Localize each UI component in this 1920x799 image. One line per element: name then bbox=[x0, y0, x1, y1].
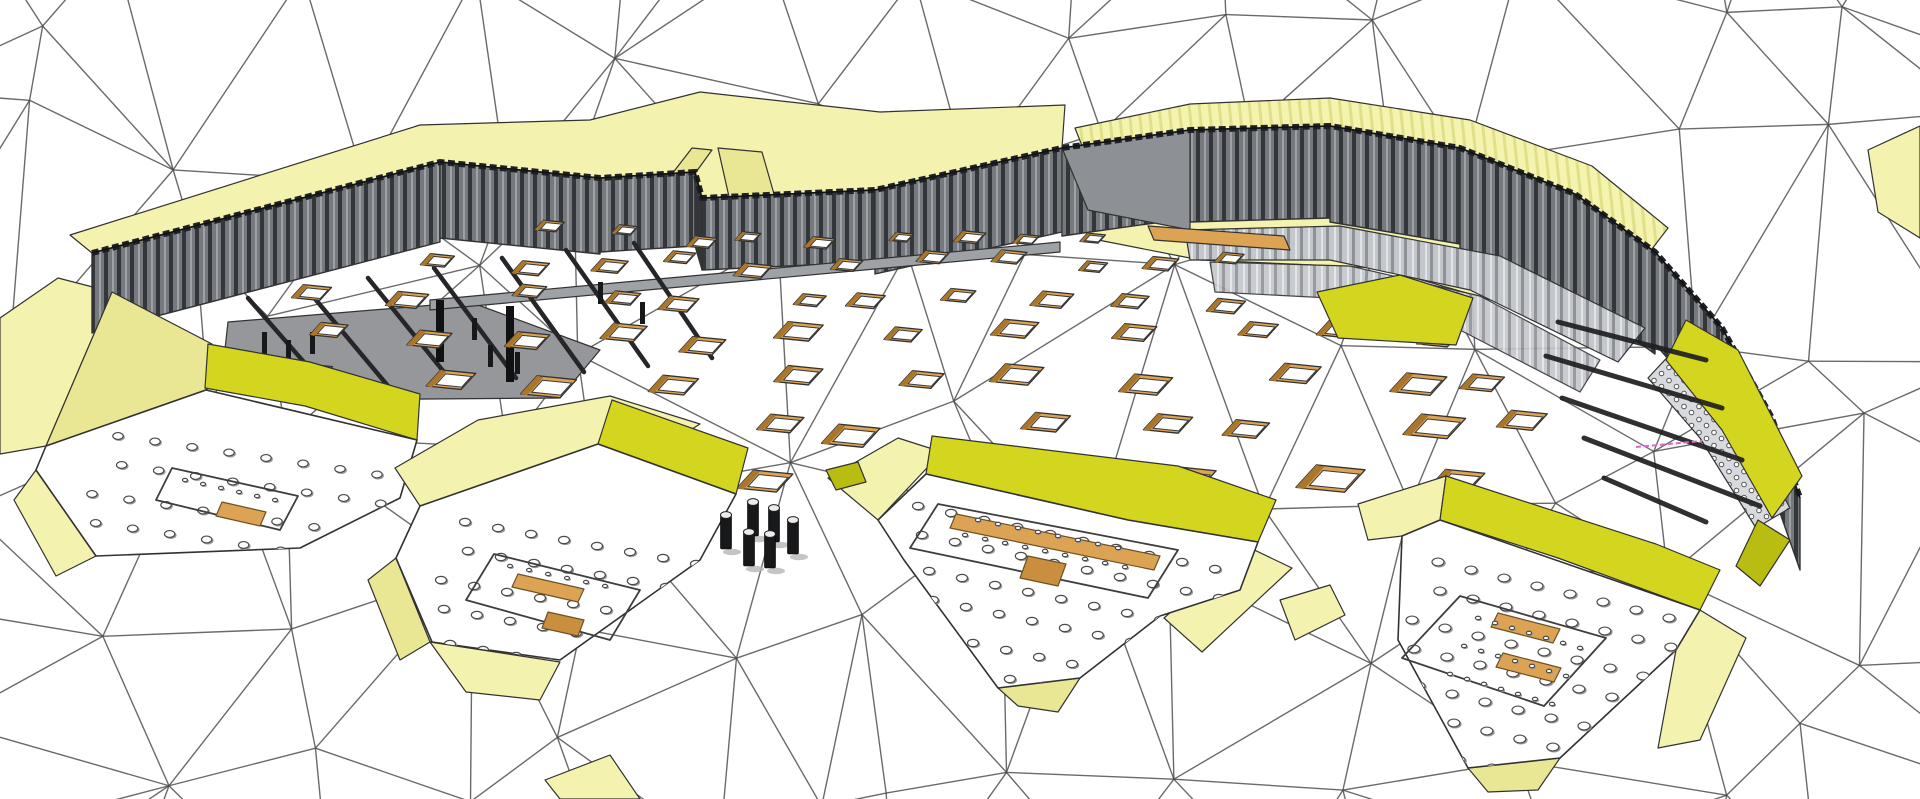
posthole-dot bbox=[201, 536, 211, 543]
posthole-dot bbox=[164, 531, 174, 538]
mesh-edge bbox=[914, 0, 1068, 38]
mesh-edge bbox=[113, 0, 173, 170]
posthole-dot bbox=[1447, 672, 1452, 675]
posthole-shadow bbox=[1355, 733, 1368, 742]
posthole-dot bbox=[610, 670, 621, 677]
posthole-dot bbox=[1042, 549, 1047, 552]
excavation-pit bbox=[511, 261, 549, 276]
posthole-shadow bbox=[1192, 653, 1204, 661]
posthole-dot bbox=[594, 571, 605, 578]
mesh-edge bbox=[1696, 124, 1828, 346]
post-ground-shadow bbox=[723, 549, 741, 555]
excavation-pit bbox=[648, 375, 698, 395]
mesh-edge bbox=[43, 0, 114, 26]
excavation-pit bbox=[1296, 465, 1365, 492]
posthole-dot bbox=[1089, 602, 1100, 609]
excavation-pit bbox=[989, 364, 1044, 386]
post-top bbox=[769, 505, 780, 512]
mesh-edge bbox=[736, 615, 862, 659]
posthole-dot bbox=[1563, 674, 1568, 677]
excavation-pit bbox=[1111, 294, 1149, 309]
posthole-dot bbox=[693, 589, 704, 596]
posthole-dot bbox=[1529, 664, 1534, 667]
mesh-edge bbox=[169, 629, 292, 786]
excavation-pit bbox=[1080, 233, 1105, 243]
mesh-edge bbox=[1766, 0, 1842, 7]
mesh-edge bbox=[1069, 15, 1226, 39]
mesh-edge bbox=[1343, 790, 1551, 799]
excavation-pit bbox=[600, 323, 647, 342]
excavation-pit bbox=[1222, 420, 1269, 439]
posthole-dot bbox=[1380, 674, 1392, 682]
props-layer bbox=[721, 499, 809, 575]
mesh-edge bbox=[1842, 0, 1920, 7]
excavation-pit bbox=[591, 259, 628, 274]
mesh-edge bbox=[822, 793, 886, 799]
posthole-dot bbox=[1479, 698, 1491, 706]
posthole-dot bbox=[309, 524, 319, 531]
posthole-dot bbox=[1001, 646, 1012, 653]
mesh-edge bbox=[1007, 772, 1099, 799]
mesh-edge bbox=[1842, 7, 1920, 62]
posthole-dot bbox=[990, 581, 1001, 588]
east-green-foot bbox=[1736, 520, 1790, 586]
posthole-shadow bbox=[643, 677, 655, 685]
posthole-dot bbox=[1472, 632, 1484, 640]
posthole-dot bbox=[1611, 730, 1623, 738]
posthole-dot bbox=[584, 580, 589, 583]
mesh-edge bbox=[1809, 124, 1829, 361]
posthole-shadow bbox=[634, 613, 646, 621]
mesh-edge bbox=[471, 737, 558, 799]
post-body bbox=[744, 532, 755, 566]
posthole-dot bbox=[1604, 664, 1616, 672]
posthole-platforms-layer bbox=[14, 292, 1746, 799]
posthole-shadow bbox=[1646, 768, 1659, 777]
posthole-dot bbox=[1406, 616, 1418, 624]
posthole-dot bbox=[1177, 558, 1188, 565]
mesh-edge bbox=[0, 609, 103, 636]
posthole-dot bbox=[526, 530, 537, 537]
posthole-dot bbox=[1526, 631, 1531, 634]
posthole-dot bbox=[535, 594, 546, 601]
posthole-dot bbox=[1547, 743, 1559, 751]
posthole-dot bbox=[1515, 692, 1520, 695]
posthole-dot bbox=[1026, 617, 1037, 624]
posthole-dot bbox=[1498, 687, 1503, 690]
posthole-shadow bbox=[869, 619, 881, 627]
excavation-pit bbox=[991, 319, 1039, 338]
posthole-dot bbox=[1632, 635, 1644, 643]
post-body bbox=[765, 534, 776, 568]
mesh-edge bbox=[1859, 413, 1864, 665]
posthole-dot bbox=[1498, 574, 1510, 582]
mesh-edge bbox=[1341, 346, 1475, 350]
posthole-dot bbox=[1122, 609, 1133, 616]
mesh-edge bbox=[1727, 723, 1800, 795]
posthole-shadow bbox=[891, 561, 903, 569]
excavation-pit bbox=[1079, 261, 1108, 272]
posthole-dot bbox=[625, 548, 636, 555]
mesh-edge bbox=[1679, 124, 1828, 129]
posthole-dot bbox=[1552, 780, 1564, 788]
posthole-dot bbox=[1571, 656, 1583, 664]
mesh-edge bbox=[818, 0, 914, 104]
posthole-dot bbox=[1387, 740, 1399, 748]
posthole-dot bbox=[1432, 558, 1444, 566]
posthole-dot bbox=[1606, 693, 1618, 701]
posthole-dot bbox=[869, 618, 880, 625]
posthole-dot bbox=[272, 518, 282, 525]
posthole-dot bbox=[508, 564, 513, 567]
posthole-dot bbox=[1100, 667, 1111, 674]
posthole-dot bbox=[1538, 648, 1550, 656]
mesh-edge bbox=[769, 0, 819, 104]
posthole-dot bbox=[1446, 690, 1458, 698]
posthole-shadow bbox=[1381, 675, 1394, 684]
posthole-dot bbox=[993, 610, 1004, 617]
posthole-shadow bbox=[1613, 760, 1626, 769]
posthole-dot bbox=[982, 545, 993, 552]
posthole-dot bbox=[1505, 640, 1517, 648]
posthole-dot bbox=[127, 525, 137, 532]
posthole-dot bbox=[504, 617, 515, 624]
mesh-edge bbox=[0, 786, 169, 799]
timber-post bbox=[515, 352, 520, 374]
posthole-shadow bbox=[902, 626, 914, 634]
posthole-dot bbox=[1566, 619, 1578, 627]
posthole-dot bbox=[150, 438, 160, 445]
posthole-dot bbox=[1023, 588, 1034, 595]
posthole-dot bbox=[968, 639, 979, 646]
mesh-edge bbox=[1864, 413, 1920, 464]
posthole-dot bbox=[891, 560, 902, 567]
excavation-pit bbox=[1206, 298, 1245, 313]
excavation-pit bbox=[774, 366, 823, 385]
posthole-shadow bbox=[346, 530, 357, 537]
posthole-dot bbox=[1055, 534, 1060, 537]
mesh-edge bbox=[103, 629, 292, 636]
posthole-dot bbox=[1136, 703, 1147, 710]
black-post-cylinder bbox=[744, 529, 765, 573]
mesh-edge bbox=[1809, 361, 1865, 413]
posthole-dot bbox=[627, 577, 638, 584]
posthole-dot bbox=[116, 462, 126, 469]
posthole-dot bbox=[1464, 677, 1469, 680]
black-post-cylinder bbox=[765, 531, 786, 575]
posthole-dot bbox=[1495, 654, 1500, 657]
posthole-dot bbox=[1599, 627, 1611, 635]
posthole-dot bbox=[493, 524, 504, 531]
timber-post bbox=[472, 318, 477, 340]
mesh-edge bbox=[1800, 723, 1920, 799]
posthole-dot bbox=[1191, 652, 1202, 659]
posthole-shadow bbox=[1586, 789, 1599, 798]
posthole-dot bbox=[634, 612, 645, 619]
mesh-edge bbox=[557, 658, 736, 737]
posthole-dot bbox=[1180, 587, 1191, 594]
posthole-shadow bbox=[1104, 697, 1116, 705]
palisade-n3 bbox=[702, 190, 875, 270]
mesh-edge bbox=[1842, 7, 1920, 112]
posthole-dot bbox=[905, 654, 916, 661]
posthole-dot bbox=[1481, 727, 1493, 735]
post-top bbox=[744, 529, 755, 536]
posthole-dot bbox=[603, 584, 608, 587]
post-top bbox=[748, 499, 759, 506]
mesh-edge bbox=[476, 0, 615, 58]
posthole-dot bbox=[1531, 582, 1543, 590]
posthole-dot bbox=[527, 568, 532, 571]
posthole-dot bbox=[938, 661, 949, 668]
mesh-edge bbox=[1221, 0, 1226, 15]
posthole-dot bbox=[1514, 735, 1526, 743]
posthole-dot bbox=[1543, 636, 1548, 639]
posthole-dot bbox=[565, 576, 570, 579]
excavation-pit bbox=[1119, 374, 1173, 395]
posthole-dot bbox=[872, 647, 883, 654]
excavation-pit bbox=[291, 285, 331, 301]
mesh-edge bbox=[1864, 362, 1920, 413]
mesh-edge bbox=[1551, 795, 1727, 799]
posthole-dot bbox=[1015, 526, 1020, 529]
posthole-dot bbox=[1597, 598, 1609, 606]
posthole-dot bbox=[346, 529, 356, 536]
posthole-dot bbox=[1475, 616, 1480, 619]
mesh-edge bbox=[30, 100, 174, 170]
mesh-edge bbox=[1264, 509, 1371, 663]
mesh-edge bbox=[1520, 0, 1680, 129]
post-body bbox=[788, 520, 799, 554]
posthole-dot bbox=[1082, 557, 1087, 560]
timber-post bbox=[598, 282, 603, 304]
posthole-dot bbox=[636, 641, 647, 648]
posthole-dot bbox=[1478, 649, 1483, 652]
posthole-dot bbox=[335, 466, 345, 473]
posthole-shadow bbox=[1382, 704, 1395, 713]
posthole-dot bbox=[1646, 767, 1658, 775]
posthole-dot bbox=[643, 676, 654, 683]
mesh-edge bbox=[169, 748, 315, 786]
posthole-dot bbox=[261, 455, 271, 462]
posthole-shadow bbox=[1553, 781, 1566, 790]
post-ground-shadow bbox=[790, 554, 808, 560]
mesh-edge bbox=[1859, 464, 1920, 666]
terrace-beam bbox=[1604, 478, 1706, 522]
excavation-pit bbox=[1403, 414, 1466, 439]
post-top bbox=[721, 512, 732, 519]
posthole-shadow bbox=[972, 669, 984, 677]
posthole-dot bbox=[183, 478, 188, 481]
mesh-edge bbox=[1859, 665, 1920, 799]
posthole-dot bbox=[1577, 646, 1582, 649]
mesh-edge bbox=[0, 636, 103, 722]
stray-pale-a bbox=[1280, 585, 1345, 640]
excavation-pit bbox=[822, 424, 881, 447]
posthole-dot bbox=[502, 588, 513, 595]
posthole-dot bbox=[372, 471, 382, 478]
mesh-edge bbox=[736, 658, 821, 799]
timber-post bbox=[488, 345, 493, 367]
posthole-dot bbox=[436, 576, 447, 583]
posthole-shadow bbox=[1612, 731, 1625, 740]
posthole-dot bbox=[1002, 541, 1007, 544]
posthole-dot bbox=[1474, 661, 1486, 669]
posthole-shadow bbox=[935, 633, 947, 641]
mesh-edge bbox=[719, 658, 736, 799]
posthole-dot bbox=[1564, 590, 1576, 598]
posthole-dot bbox=[902, 625, 913, 632]
posthole-dot bbox=[1630, 606, 1642, 614]
mesh-edge bbox=[1859, 660, 1920, 665]
posthole-dot bbox=[460, 518, 471, 525]
excavation-pit bbox=[664, 251, 696, 264]
posthole-platform-southwest bbox=[368, 396, 748, 700]
posthole-shadow bbox=[1421, 749, 1434, 758]
posthole-dot bbox=[913, 502, 924, 509]
posthole-dot bbox=[1644, 738, 1656, 746]
posthole-dot bbox=[1580, 751, 1592, 759]
excavation-pit bbox=[757, 414, 804, 433]
posthole-shadow bbox=[1388, 741, 1401, 750]
posthole-shadow bbox=[577, 665, 589, 673]
excavation-pit bbox=[899, 371, 944, 389]
excavation-pit bbox=[1238, 322, 1279, 338]
posthole-dot bbox=[957, 574, 968, 581]
excavation-pit bbox=[1021, 412, 1071, 432]
posthole-dot bbox=[462, 547, 473, 554]
mesh-edge bbox=[1679, 12, 1727, 129]
excavation-pit bbox=[793, 294, 826, 307]
mesh-edge bbox=[822, 615, 862, 799]
posthole-dot bbox=[1512, 659, 1517, 662]
posthole-dot bbox=[1560, 641, 1565, 644]
posthole-dot bbox=[1413, 682, 1425, 690]
posthole-dot bbox=[1075, 538, 1080, 541]
posthole-dot bbox=[87, 491, 97, 498]
mesh-edge bbox=[1520, 0, 1727, 12]
posthole-dot bbox=[1382, 703, 1394, 711]
mesh-edge bbox=[1828, 112, 1920, 124]
posthole-dot bbox=[982, 537, 987, 540]
posthole-dot bbox=[1573, 685, 1585, 693]
posthole-dot bbox=[1663, 614, 1675, 622]
black-post-cylinder bbox=[788, 517, 809, 561]
terrain-3d-model-viewport[interactable] bbox=[0, 0, 1920, 799]
post-top bbox=[788, 517, 799, 524]
model-viewport-stage bbox=[0, 0, 1920, 799]
mesh-edge bbox=[315, 748, 470, 799]
posthole-dot bbox=[1512, 706, 1524, 714]
posthole-shadow bbox=[873, 648, 885, 656]
posthole-dot bbox=[1546, 669, 1551, 672]
posthole-shadow bbox=[1639, 702, 1652, 711]
posthole-dot bbox=[1056, 595, 1067, 602]
posthole-dot bbox=[962, 533, 967, 536]
mesh-edge bbox=[1098, 779, 1174, 799]
post-ground-shadow bbox=[767, 568, 785, 574]
stray-pale-b bbox=[545, 755, 640, 799]
posthole-shadow bbox=[1159, 646, 1171, 654]
mesh-edge bbox=[0, 91, 30, 100]
posthole-dot bbox=[658, 554, 669, 561]
posthole-shadow bbox=[350, 559, 361, 566]
posthole-dot bbox=[1102, 561, 1107, 564]
posthole-dot bbox=[255, 494, 260, 497]
mesh-edge bbox=[1174, 779, 1343, 790]
mesh-edge bbox=[1069, 38, 1102, 132]
posthole-dot bbox=[1092, 631, 1103, 638]
posthole-dot bbox=[219, 486, 224, 489]
excavation-pit bbox=[1143, 414, 1192, 433]
post-ground-shadow bbox=[746, 566, 764, 572]
posthole-shadow bbox=[939, 662, 951, 670]
posthole-dot bbox=[949, 538, 960, 545]
posthole-dot bbox=[1532, 697, 1537, 700]
posthole-dot bbox=[1420, 748, 1432, 756]
posthole-dot bbox=[275, 547, 285, 554]
posthole-dot bbox=[298, 460, 308, 467]
excavation-pit bbox=[1460, 374, 1505, 392]
excavation-pit bbox=[845, 293, 885, 309]
mesh-edge bbox=[1800, 723, 1819, 799]
posthole-dot bbox=[238, 542, 248, 549]
mesh-edge bbox=[615, 0, 733, 58]
posthole-dot bbox=[1549, 702, 1554, 705]
mesh-edge bbox=[886, 772, 1006, 793]
mesh-edge bbox=[862, 615, 886, 793]
mesh-edge bbox=[1343, 663, 1371, 790]
posthole-dot bbox=[187, 444, 197, 451]
mesh-edge bbox=[315, 748, 334, 799]
posthole-shadow bbox=[667, 619, 679, 627]
timber-post bbox=[262, 332, 267, 354]
excavation-pit bbox=[420, 254, 454, 267]
posthole-dot bbox=[90, 520, 100, 527]
posthole-shadow bbox=[1071, 690, 1083, 698]
mesh-edge bbox=[1727, 795, 1819, 799]
posthole-dot bbox=[1481, 682, 1486, 685]
posthole-dot bbox=[1585, 788, 1597, 796]
excavation-pit bbox=[658, 296, 699, 312]
posthole-dot bbox=[1015, 552, 1026, 559]
excavation-pit bbox=[884, 327, 922, 342]
mesh-edge bbox=[1809, 361, 1920, 362]
posthole-dot bbox=[1415, 711, 1427, 719]
posthole-shadow bbox=[895, 590, 907, 598]
mesh-edge bbox=[581, 629, 737, 658]
posthole-shadow bbox=[1645, 739, 1658, 748]
mesh-edge bbox=[292, 629, 316, 748]
posthole-dot bbox=[1004, 675, 1015, 682]
posthole-dot bbox=[1465, 566, 1477, 574]
posthole-dot bbox=[1613, 759, 1625, 767]
posthole-platform-southeast bbox=[1354, 476, 1746, 799]
mesh-edge bbox=[1279, 790, 1343, 799]
posthole-dot bbox=[1637, 672, 1649, 680]
posthole-dot bbox=[312, 553, 322, 560]
mesh-edge bbox=[30, 26, 43, 100]
posthole-dot bbox=[1665, 643, 1677, 651]
posthole-dot bbox=[1035, 530, 1040, 533]
excavation-pit bbox=[1496, 410, 1547, 430]
mesh-edge bbox=[0, 722, 169, 786]
posthole-dot bbox=[1639, 701, 1651, 709]
post-body bbox=[721, 515, 732, 549]
posthole-dot bbox=[1062, 553, 1067, 556]
mesh-edge bbox=[1174, 663, 1371, 779]
post-top bbox=[765, 531, 776, 538]
